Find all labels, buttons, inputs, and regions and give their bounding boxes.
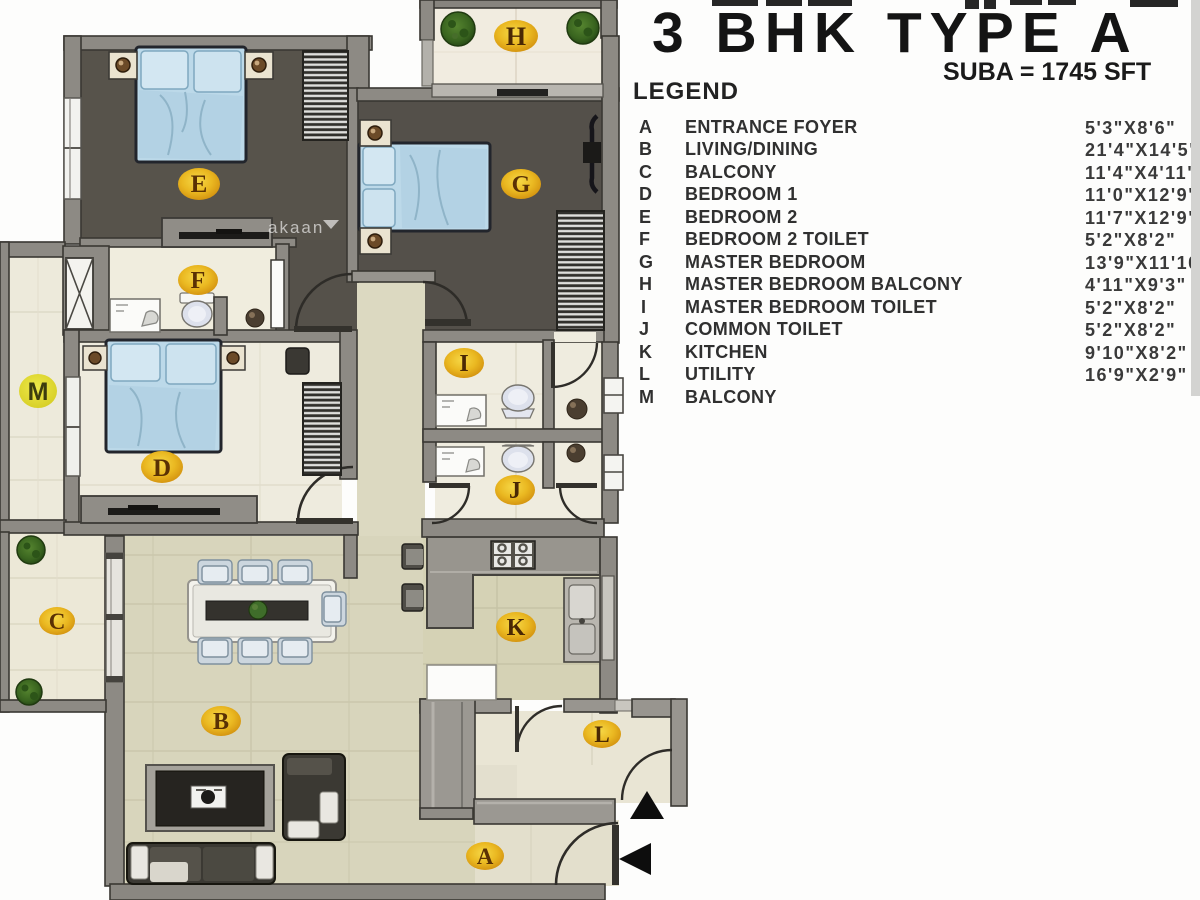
svg-text:I: I xyxy=(459,351,468,377)
svg-text:C: C xyxy=(49,609,66,634)
svg-text:B: B xyxy=(213,709,229,735)
svg-text:M: M xyxy=(28,378,49,406)
svg-text:G: G xyxy=(512,172,531,198)
svg-text:K: K xyxy=(507,615,526,641)
svg-text:H: H xyxy=(506,22,526,51)
svg-text:F: F xyxy=(191,268,206,294)
svg-text:akaan: akaan xyxy=(268,218,324,237)
svg-text:A: A xyxy=(477,844,494,869)
svg-text:L: L xyxy=(594,722,609,747)
svg-text:J: J xyxy=(509,478,521,504)
svg-text:E: E xyxy=(191,171,208,198)
svg-text:D: D xyxy=(153,455,171,482)
